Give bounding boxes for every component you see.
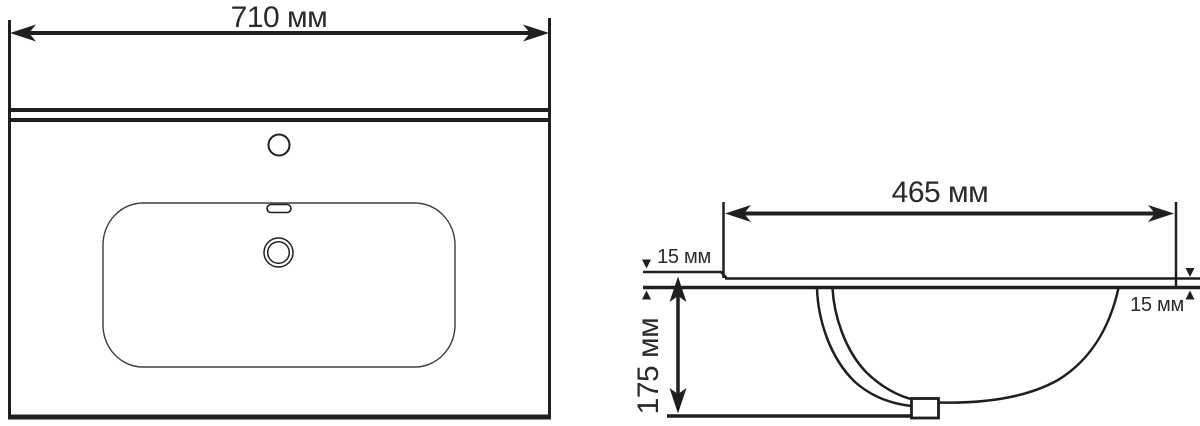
- depth-dimension-label: 465 мм: [892, 176, 989, 209]
- basin-depth-label: 175 мм: [632, 318, 665, 415]
- bowl-left-inner-wall: [833, 288, 916, 400]
- basin-bowl-section: [817, 288, 1119, 418]
- left-thickness-tick-up: [642, 291, 651, 300]
- bowl-left-outer-wall: [817, 288, 912, 406]
- countertop-outline: [8, 18, 551, 419]
- overflow-slot: [267, 205, 291, 213]
- front-view: 710 мм: [8, 1, 551, 419]
- basin-depth-dimension: 175 мм: [632, 277, 912, 417]
- drain-outlet: [912, 399, 939, 419]
- countertop-front-lip-line: [643, 272, 727, 279]
- width-dimension: 710 мм: [10, 1, 549, 42]
- faucet-hole: [269, 135, 290, 156]
- right-thickness-tick-up: [1186, 291, 1195, 300]
- left-edge-thickness-label: 15 мм: [657, 246, 711, 268]
- basin-outline: [103, 203, 455, 367]
- washbasin-dimensions-diagram: 710 мм 465 мм: [0, 0, 1200, 426]
- depth-dimension: 465 мм: [724, 176, 1177, 288]
- drain-inner-ring: [268, 242, 290, 264]
- right-thickness-tick-down: [1186, 268, 1195, 277]
- right-edge-thickness-dimension: 15 мм: [1130, 268, 1194, 316]
- drain: [264, 238, 293, 267]
- right-edge-thickness-label: 15 мм: [1130, 294, 1184, 316]
- width-dimension-label: 710 мм: [231, 1, 328, 34]
- side-view: 465 мм 15 мм 15 мм: [632, 176, 1200, 418]
- left-thickness-tick-down: [642, 260, 651, 269]
- bowl-right-wall: [939, 288, 1119, 403]
- countertop-section: [643, 272, 1200, 288]
